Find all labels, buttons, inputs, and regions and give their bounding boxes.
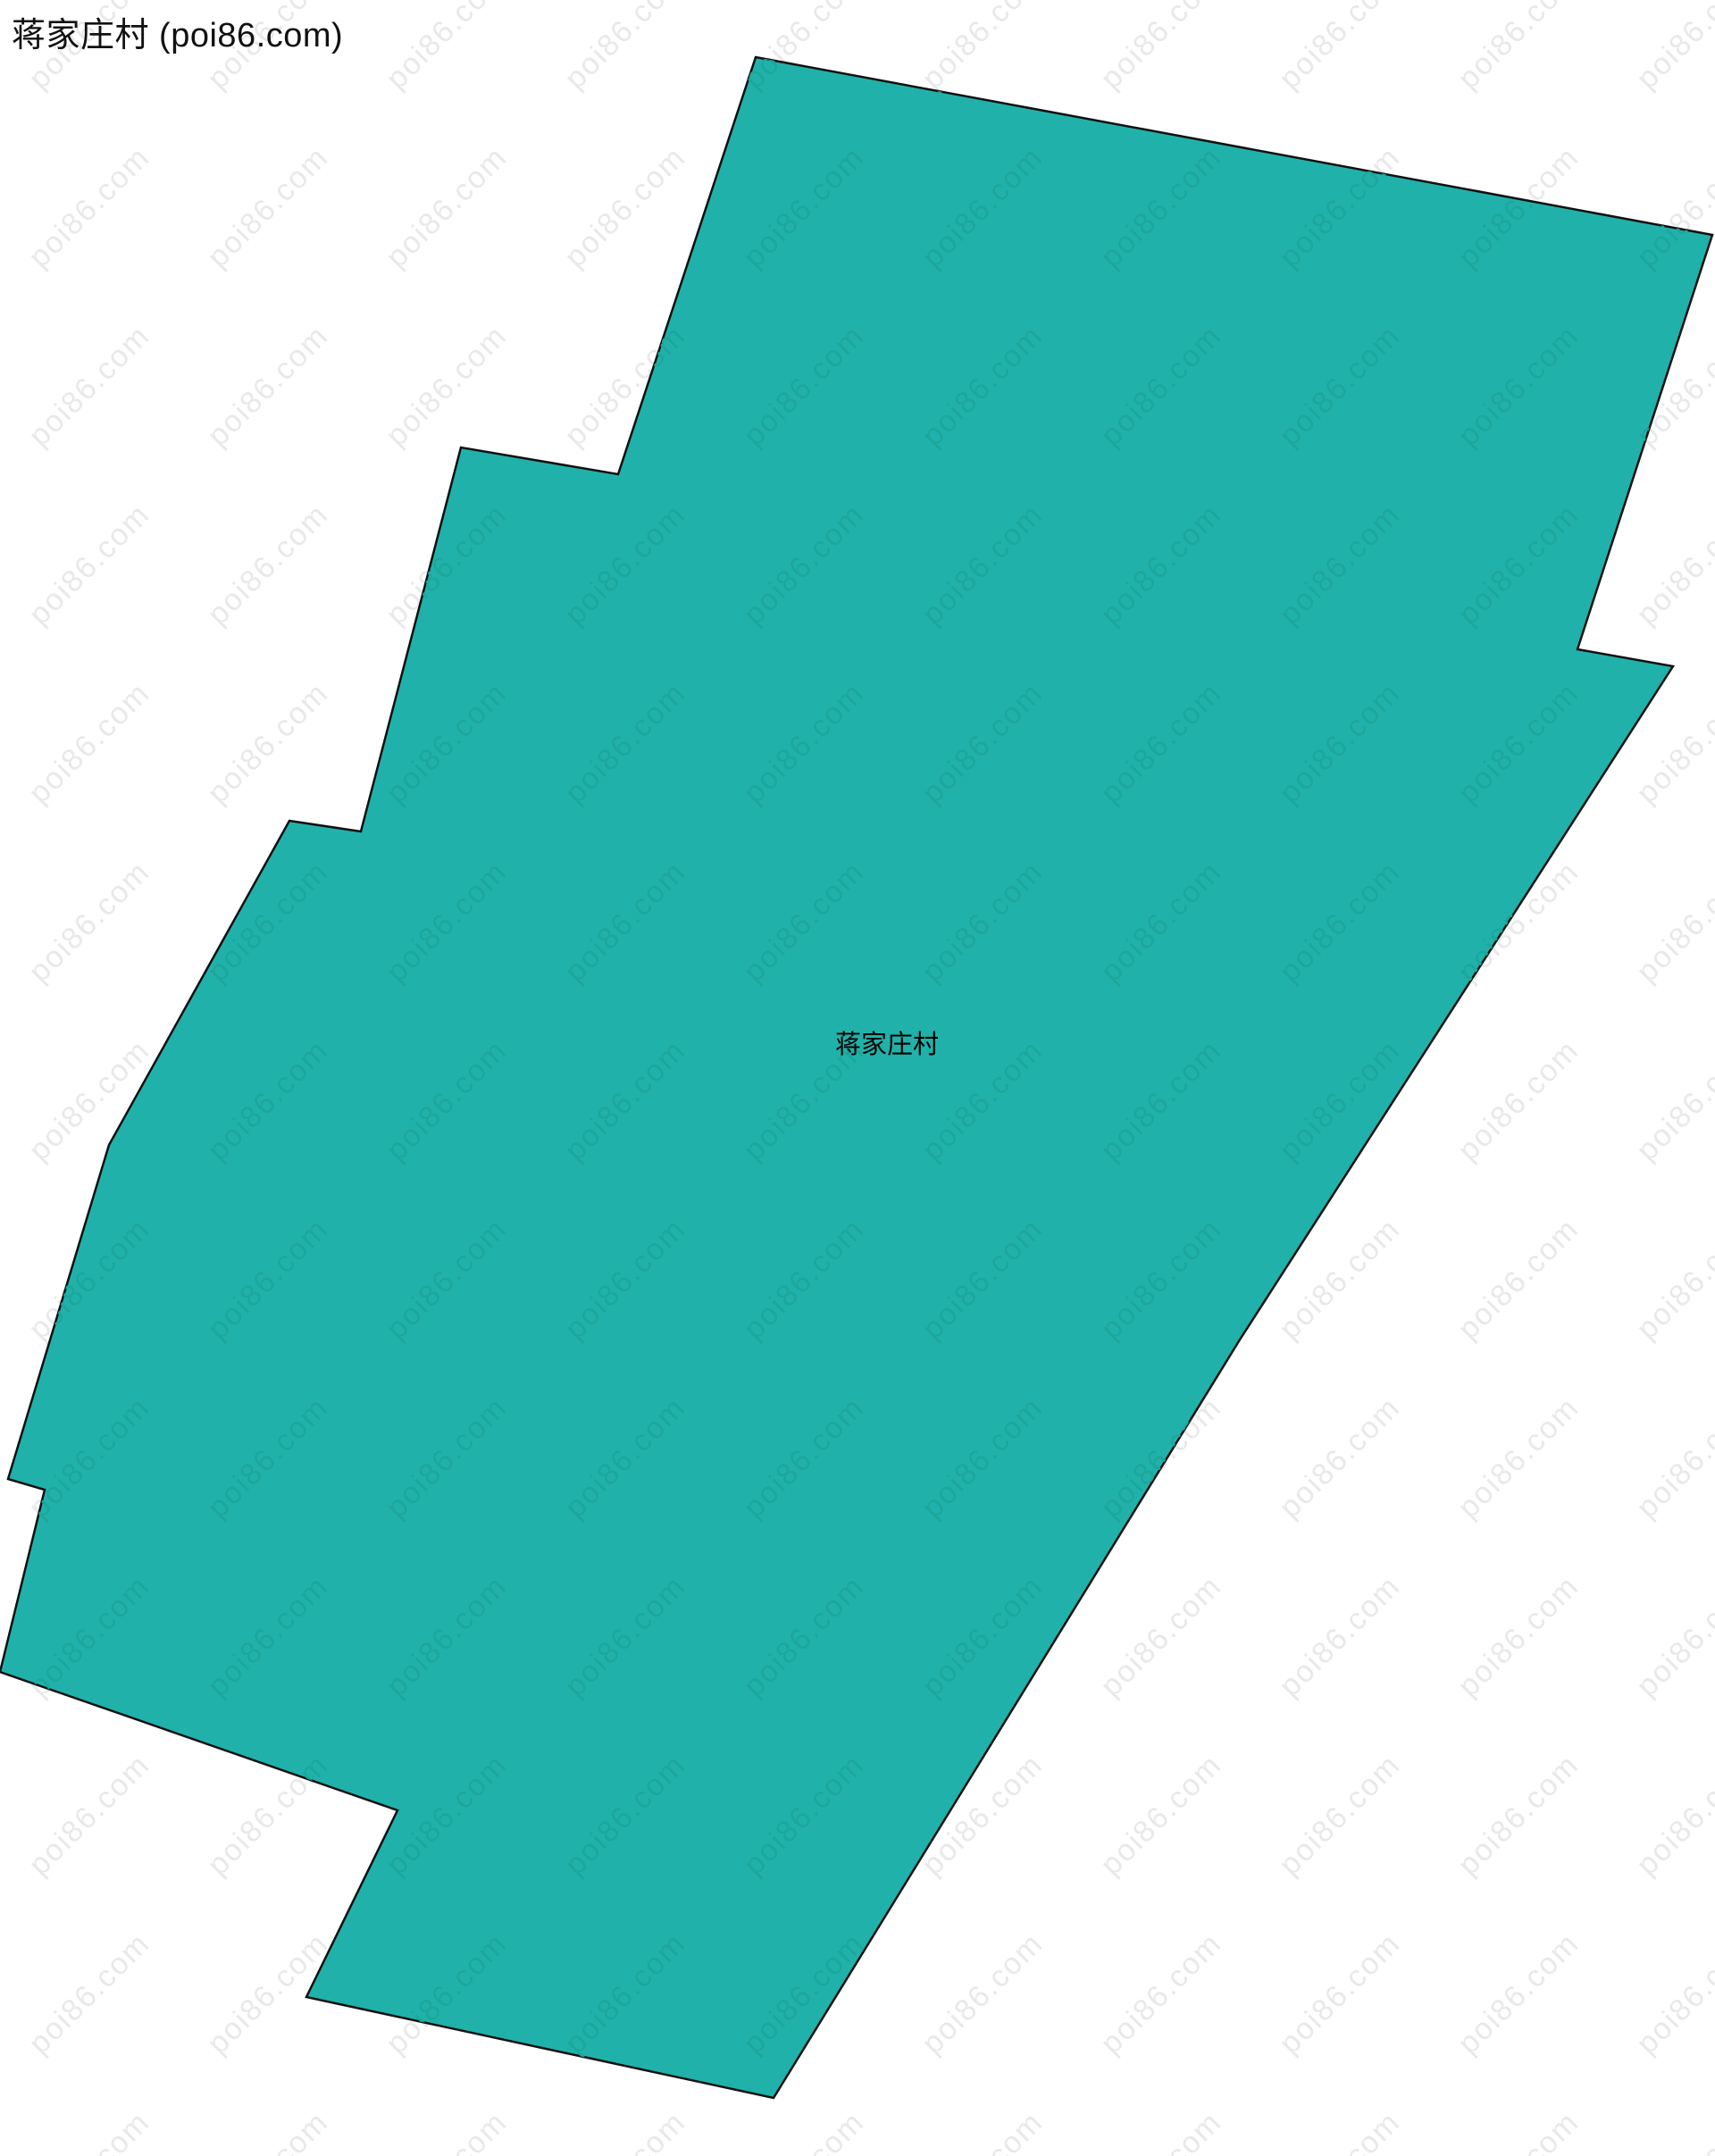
- region-label: 蒋家庄村: [835, 1024, 939, 1061]
- map-canvas[interactable]: poi86.com poi86.com: [0, 0, 1715, 2156]
- page-title: 蒋家庄村 (poi86.com): [12, 7, 343, 56]
